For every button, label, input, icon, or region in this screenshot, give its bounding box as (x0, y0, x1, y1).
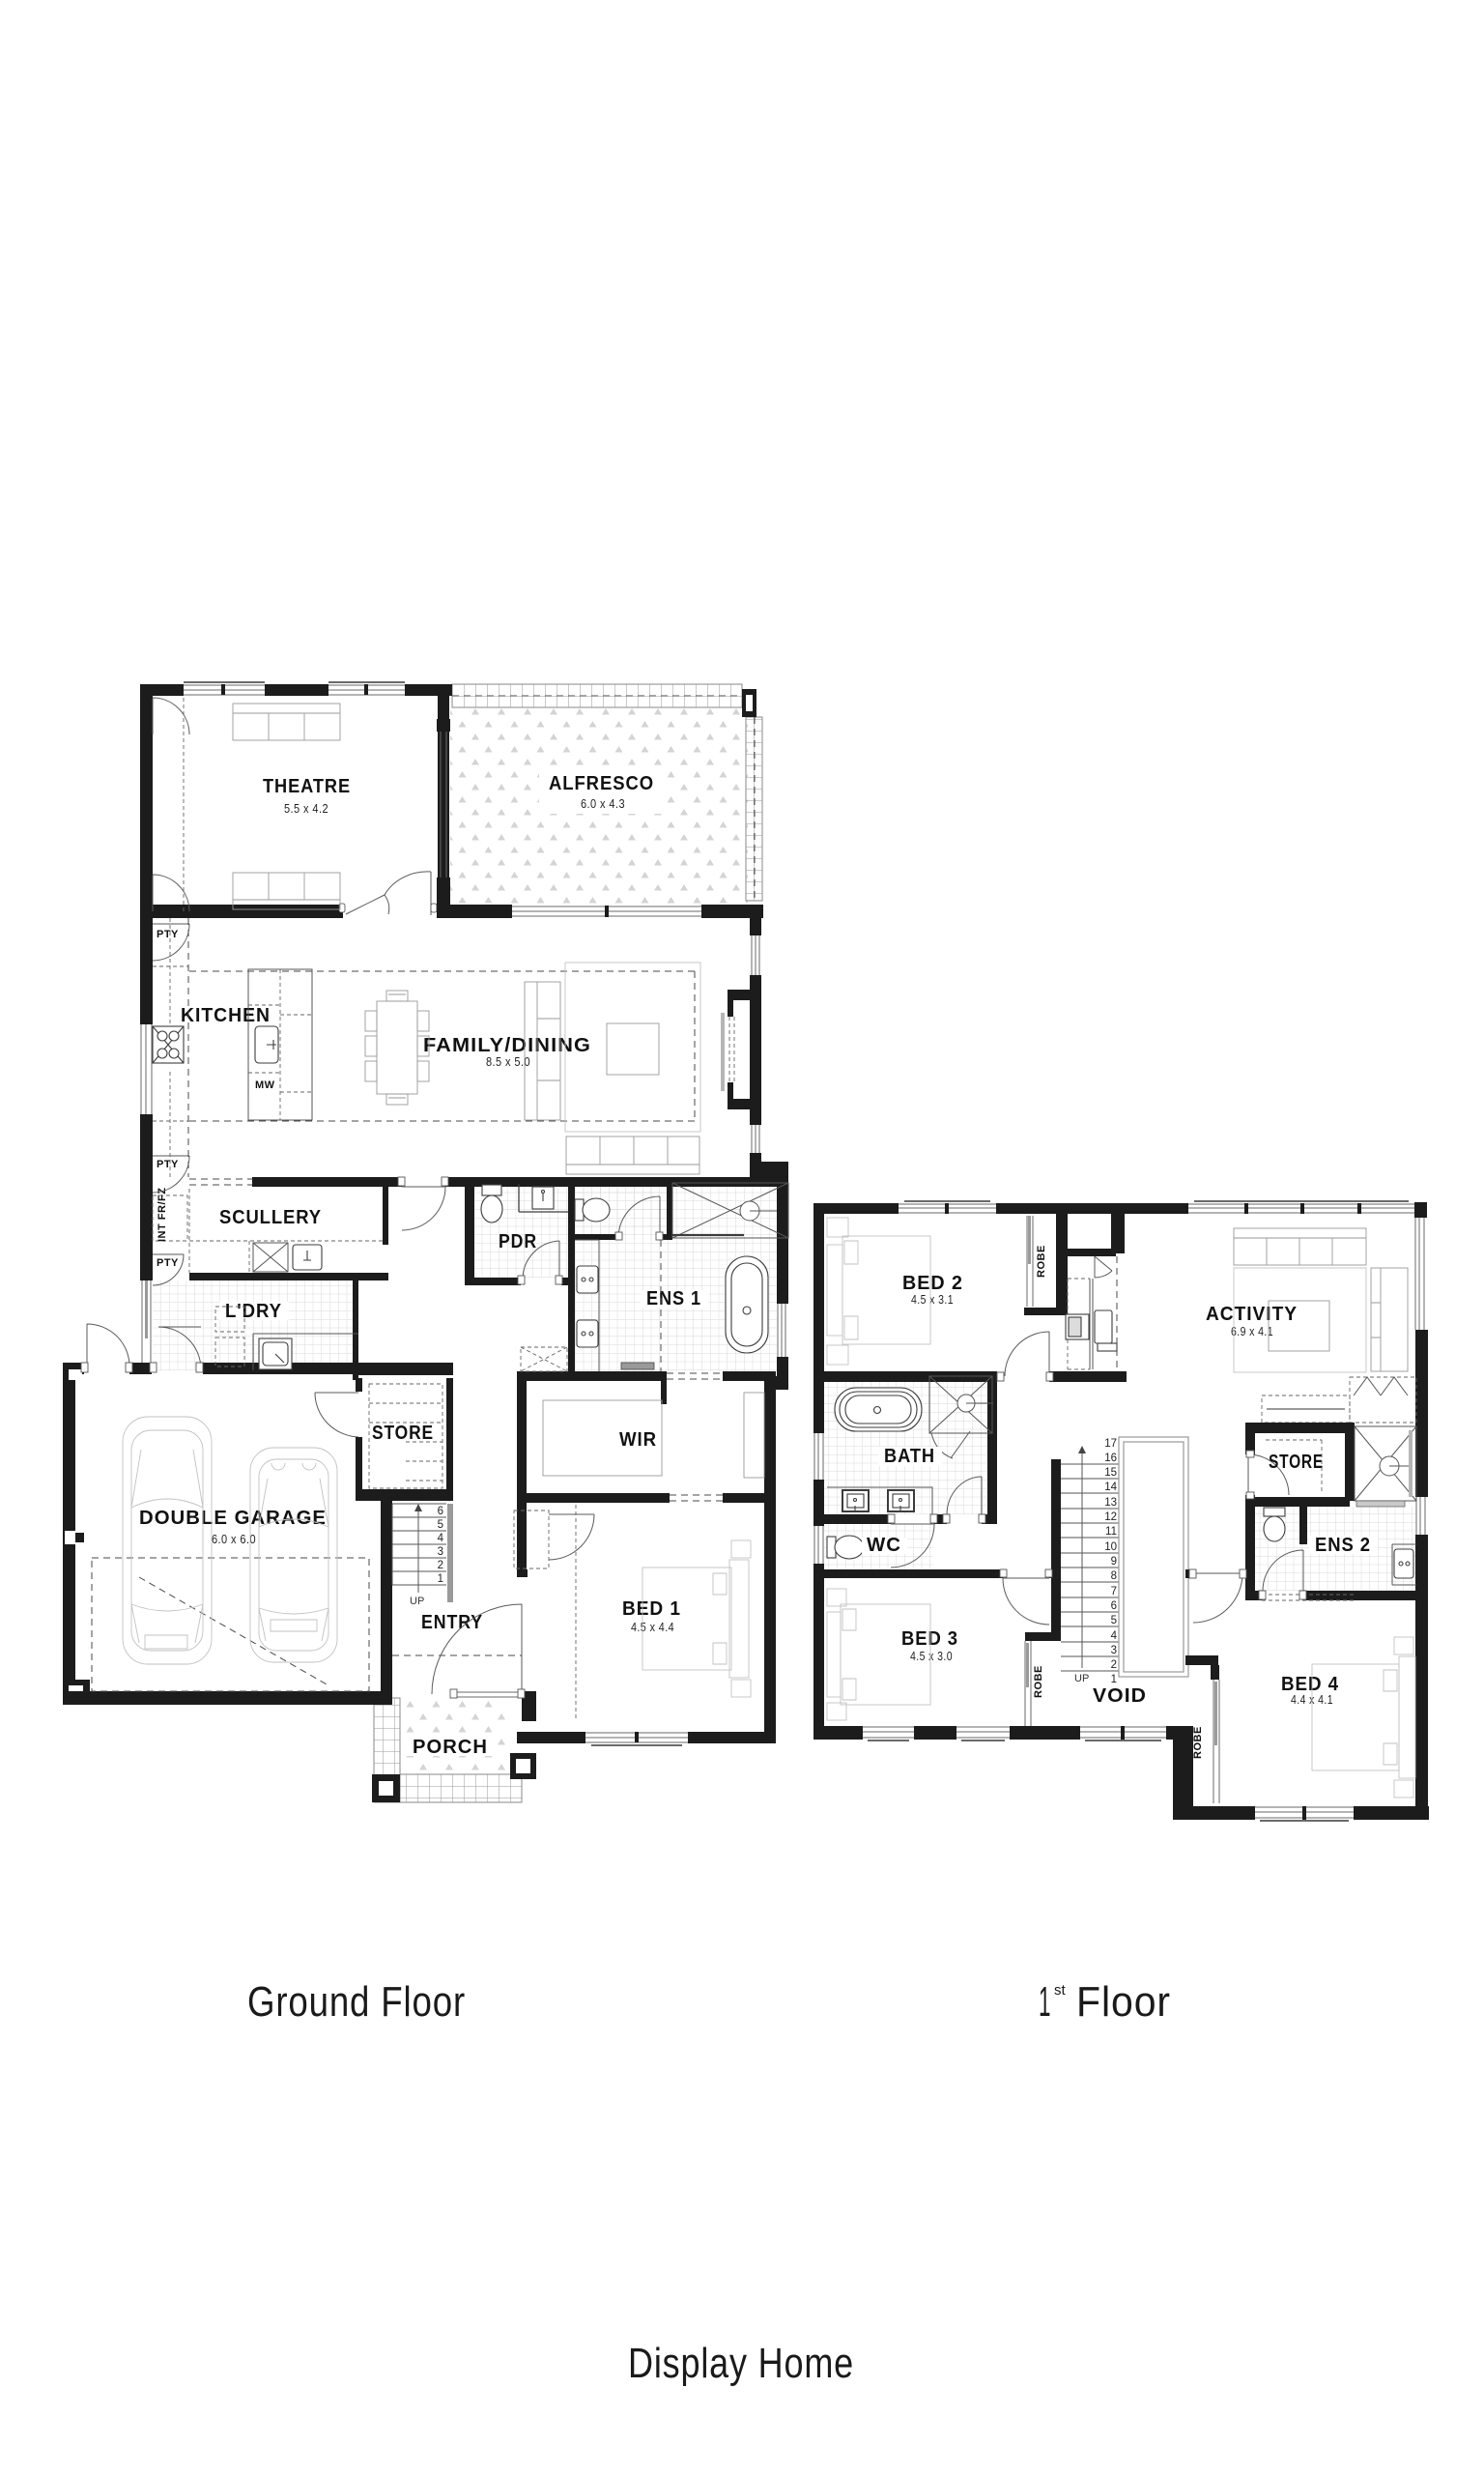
svg-text:WIR: WIR (619, 1429, 657, 1451)
svg-text:1: 1 (1039, 1978, 1051, 2026)
svg-text:BED 3: BED 3 (901, 1628, 958, 1650)
svg-text:BATH: BATH (884, 1446, 935, 1467)
svg-text:13: 13 (1104, 1497, 1117, 1509)
svg-text:6.0 x 6.0: 6.0 x 6.0 (212, 1532, 256, 1546)
svg-text:3: 3 (1111, 1645, 1117, 1656)
svg-text:INT FR/FZ: INT FR/FZ (157, 1188, 168, 1242)
svg-text:ACTIVITY: ACTIVITY (1206, 1304, 1298, 1325)
svg-text:VOID: VOID (1093, 1685, 1147, 1707)
svg-text:1: 1 (1111, 1674, 1117, 1685)
svg-text:1: 1 (438, 1573, 443, 1585)
svg-text:ENTRY: ENTRY (421, 1612, 483, 1633)
svg-text:UP: UP (410, 1596, 424, 1607)
svg-text:7: 7 (1111, 1586, 1117, 1597)
svg-text:ROBE: ROBE (1036, 1245, 1047, 1278)
svg-text:PTY: PTY (157, 1159, 179, 1170)
svg-text:4.5 x 3.0: 4.5 x 3.0 (910, 1649, 953, 1663)
svg-text:KITCHEN: KITCHEN (181, 1005, 271, 1026)
svg-text:10: 10 (1104, 1541, 1117, 1553)
svg-text:14: 14 (1104, 1482, 1117, 1493)
svg-text:4.5 x 3.1: 4.5 x 3.1 (911, 1292, 954, 1307)
svg-text:4: 4 (438, 1533, 444, 1544)
svg-text:ENS 2: ENS 2 (1315, 1535, 1371, 1556)
svg-text:8: 8 (1111, 1570, 1117, 1582)
svg-text:6: 6 (1111, 1600, 1117, 1612)
svg-text:5.5 x 4.2: 5.5 x 4.2 (284, 801, 328, 816)
svg-text:4.5 x 4.4: 4.5 x 4.4 (631, 1620, 674, 1634)
svg-text:UP: UP (1074, 1673, 1089, 1684)
svg-text:STORE: STORE (372, 1423, 434, 1444)
svg-text:Display Home: Display Home (628, 2340, 854, 2387)
svg-text:ALFRESCO: ALFRESCO (549, 773, 654, 794)
svg-text:5: 5 (1111, 1615, 1117, 1626)
svg-text:6.0 x 4.3: 6.0 x 4.3 (581, 796, 625, 811)
svg-text:2: 2 (438, 1560, 443, 1571)
svg-text:MW: MW (255, 1079, 275, 1091)
svg-text:Floor: Floor (1076, 1978, 1171, 2026)
svg-text:Ground Floor: Ground Floor (247, 1978, 466, 2026)
svg-text:PTY: PTY (157, 929, 179, 940)
svg-text:L'DRY: L'DRY (225, 1301, 282, 1322)
svg-text:STORE: STORE (1269, 1452, 1324, 1473)
svg-text:8.5 x 5.0: 8.5 x 5.0 (486, 1054, 530, 1069)
svg-text:BED 2: BED 2 (902, 1273, 963, 1294)
svg-text:6.9 x 4.1: 6.9 x 4.1 (1231, 1324, 1273, 1338)
svg-text:6: 6 (438, 1506, 443, 1517)
svg-text:15: 15 (1104, 1467, 1117, 1479)
svg-text:DOUBLE GARAGE: DOUBLE GARAGE (139, 1508, 327, 1529)
svg-text:ENS 1: ENS 1 (646, 1288, 701, 1309)
svg-text:FAMILY/DINING: FAMILY/DINING (423, 1035, 591, 1056)
svg-text:5: 5 (438, 1519, 443, 1531)
svg-text:17: 17 (1104, 1438, 1117, 1450)
svg-text:ROBE: ROBE (1192, 1726, 1204, 1759)
svg-text:PDR: PDR (499, 1231, 537, 1252)
svg-text:st: st (1054, 1982, 1067, 1999)
svg-text:PTY: PTY (157, 1257, 179, 1269)
svg-text:WC: WC (867, 1535, 901, 1556)
svg-text:4: 4 (1111, 1630, 1118, 1642)
svg-text:2: 2 (1111, 1659, 1117, 1671)
svg-text:16: 16 (1104, 1453, 1117, 1464)
svg-text:3: 3 (438, 1546, 443, 1558)
svg-text:11: 11 (1105, 1526, 1117, 1538)
svg-text:9: 9 (1111, 1556, 1117, 1568)
svg-text:PORCH: PORCH (413, 1737, 488, 1758)
svg-text:12: 12 (1104, 1511, 1117, 1523)
svg-text:THEATRE: THEATRE (263, 776, 351, 797)
svg-text:BED 1: BED 1 (622, 1598, 681, 1620)
svg-text:SCULLERY: SCULLERY (219, 1207, 322, 1228)
svg-text:ROBE: ROBE (1033, 1665, 1044, 1698)
